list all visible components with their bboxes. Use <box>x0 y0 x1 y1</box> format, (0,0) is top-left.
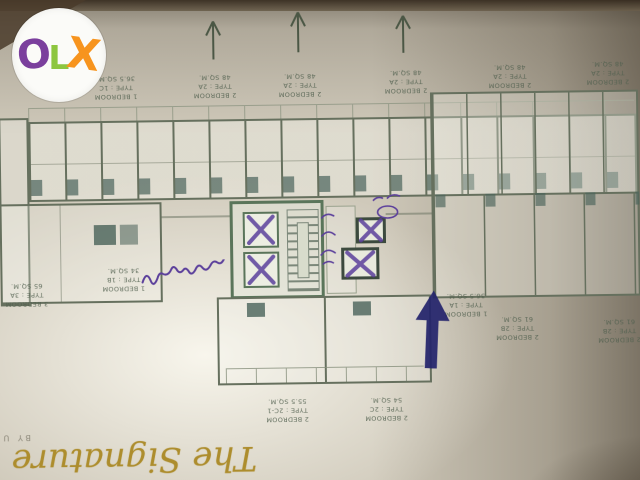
olx-letter-x: X <box>64 28 104 82</box>
compass-arrow-icon <box>286 4 311 54</box>
unit-label-2b: 2 BEDROOM TYPE : 2B 61 SQ.M. <box>589 295 640 344</box>
unit-label-2a: 2 BEDROOM TYPE : 2A 48 SQ.M. <box>567 43 640 86</box>
floorplan-photo: 1 BEDROOM TYPE : 1C 36.5 SQ.M. 2 BEDROOM… <box>0 0 640 480</box>
unit-label-2a: 2 BEDROOM TYPE : 2A 48 SQ.M. <box>174 57 255 100</box>
handwritten-note <box>136 259 228 294</box>
unit-label-2a: 2 BEDROOM TYPE : 2A 48 SQ.M. <box>259 56 340 99</box>
unit-label-2c1: 2 BEDROOM TYPE : 2C-1 55.5 SQ.M. <box>245 383 330 424</box>
project-brand-mark: The Signature by URBANO <box>0 399 257 479</box>
x-mark-annotation <box>244 213 278 247</box>
lower-units-block <box>217 294 432 385</box>
olx-watermark-logo: O L X <box>12 8 106 102</box>
unit-label-2a: 2 BEDROOM TYPE : 2A 48 SQ.M. <box>469 47 550 90</box>
bathroom-fixture <box>247 303 265 317</box>
unit-label-2c: 2 BEDROOM TYPE : 2C 54 SQ.M. <box>345 382 428 423</box>
unit-label-3a: 3 BEDROOM TYPE : 3A 65 SQ.M. <box>0 268 55 309</box>
compass-arrow-icon <box>392 9 415 55</box>
stair-rail <box>297 222 310 278</box>
compass-arrow-icon <box>201 13 226 61</box>
bottom-balcony-strip <box>226 366 424 384</box>
bathroom-fixture <box>120 225 138 245</box>
brand-script-text: The Signature <box>0 441 257 479</box>
handwritten-note <box>318 208 341 270</box>
x-mark-annotation <box>342 248 378 279</box>
bathroom-fixture <box>94 225 116 245</box>
unit-label-2a: 2 BEDROOM TYPE : 2A 48 SQ.M. <box>365 52 446 95</box>
plan-linework <box>432 92 637 195</box>
handwritten-note <box>367 191 407 222</box>
corridor-line <box>162 215 230 218</box>
right-units-block <box>430 90 640 299</box>
unit-label-2b: 2 BEDROOM TYPE : 2B 61 SQ.M. <box>485 295 550 342</box>
blue-arrow-annotation <box>410 290 455 370</box>
bathroom-fixture <box>353 301 371 315</box>
x-mark-annotation <box>244 253 278 287</box>
